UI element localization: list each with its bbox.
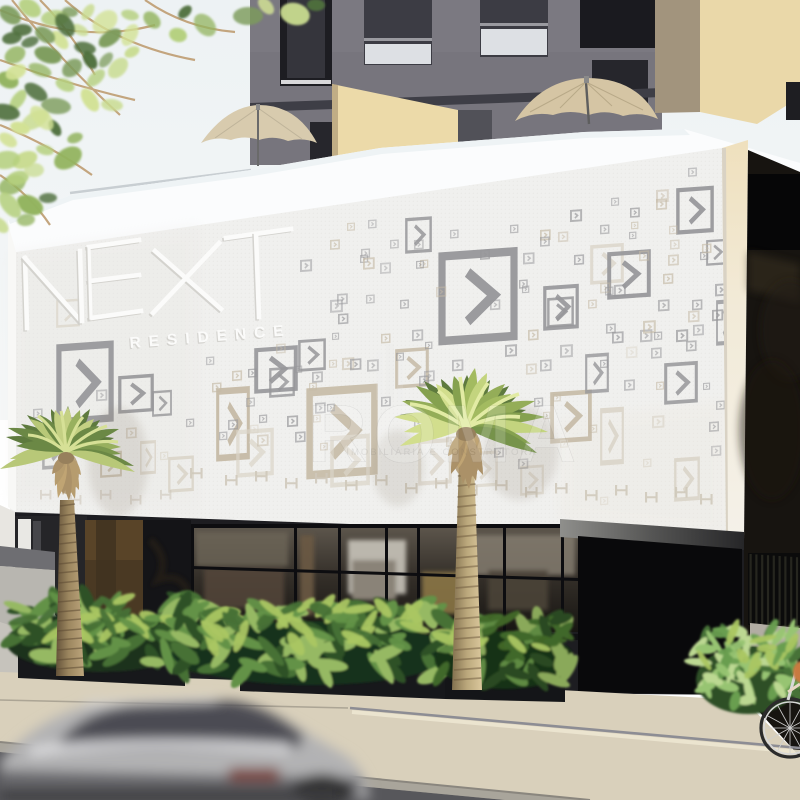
svg-text:IMOBILIÁRIA E CONSTRUTORA: IMOBILIÁRIA E CONSTRUTORA: [346, 447, 537, 458]
svg-text:ROMA: ROMA: [308, 389, 583, 480]
